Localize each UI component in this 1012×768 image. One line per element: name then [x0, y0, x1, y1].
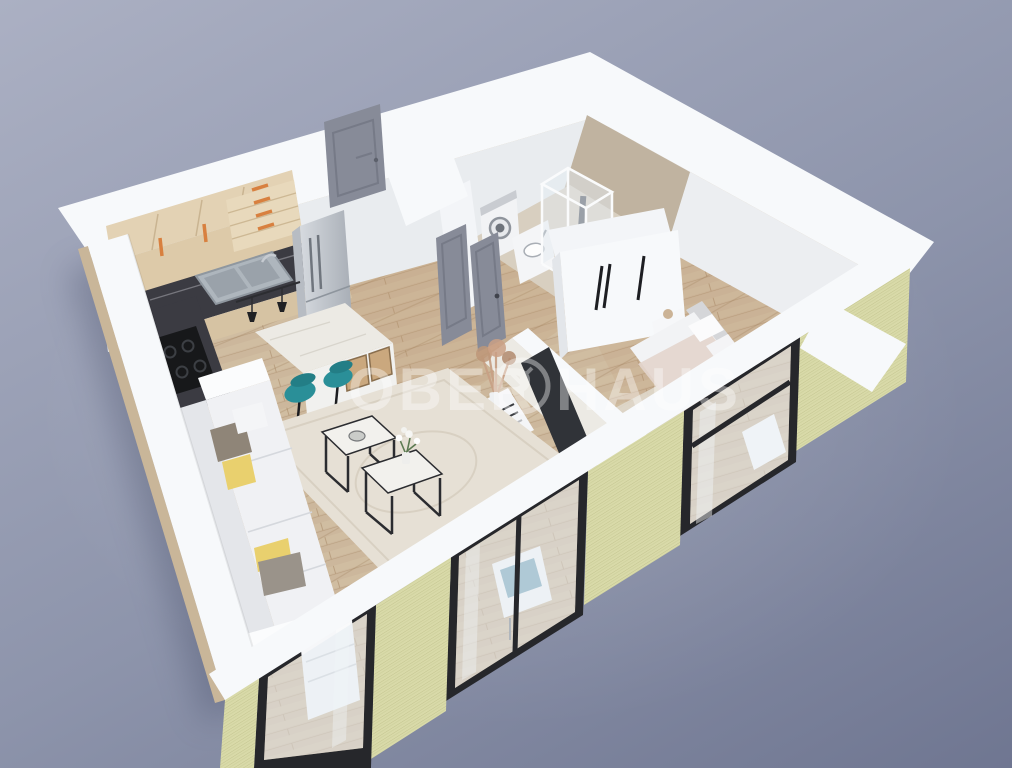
apartment-3d-render: OBER HAUS — [0, 0, 1012, 768]
watermark-text-right: HAUS — [556, 356, 742, 423]
floorplan-scene: OBER HAUS — [0, 0, 1012, 768]
bathroom-door — [436, 224, 472, 346]
entry-door — [324, 104, 386, 208]
teddy-bear — [663, 309, 673, 319]
